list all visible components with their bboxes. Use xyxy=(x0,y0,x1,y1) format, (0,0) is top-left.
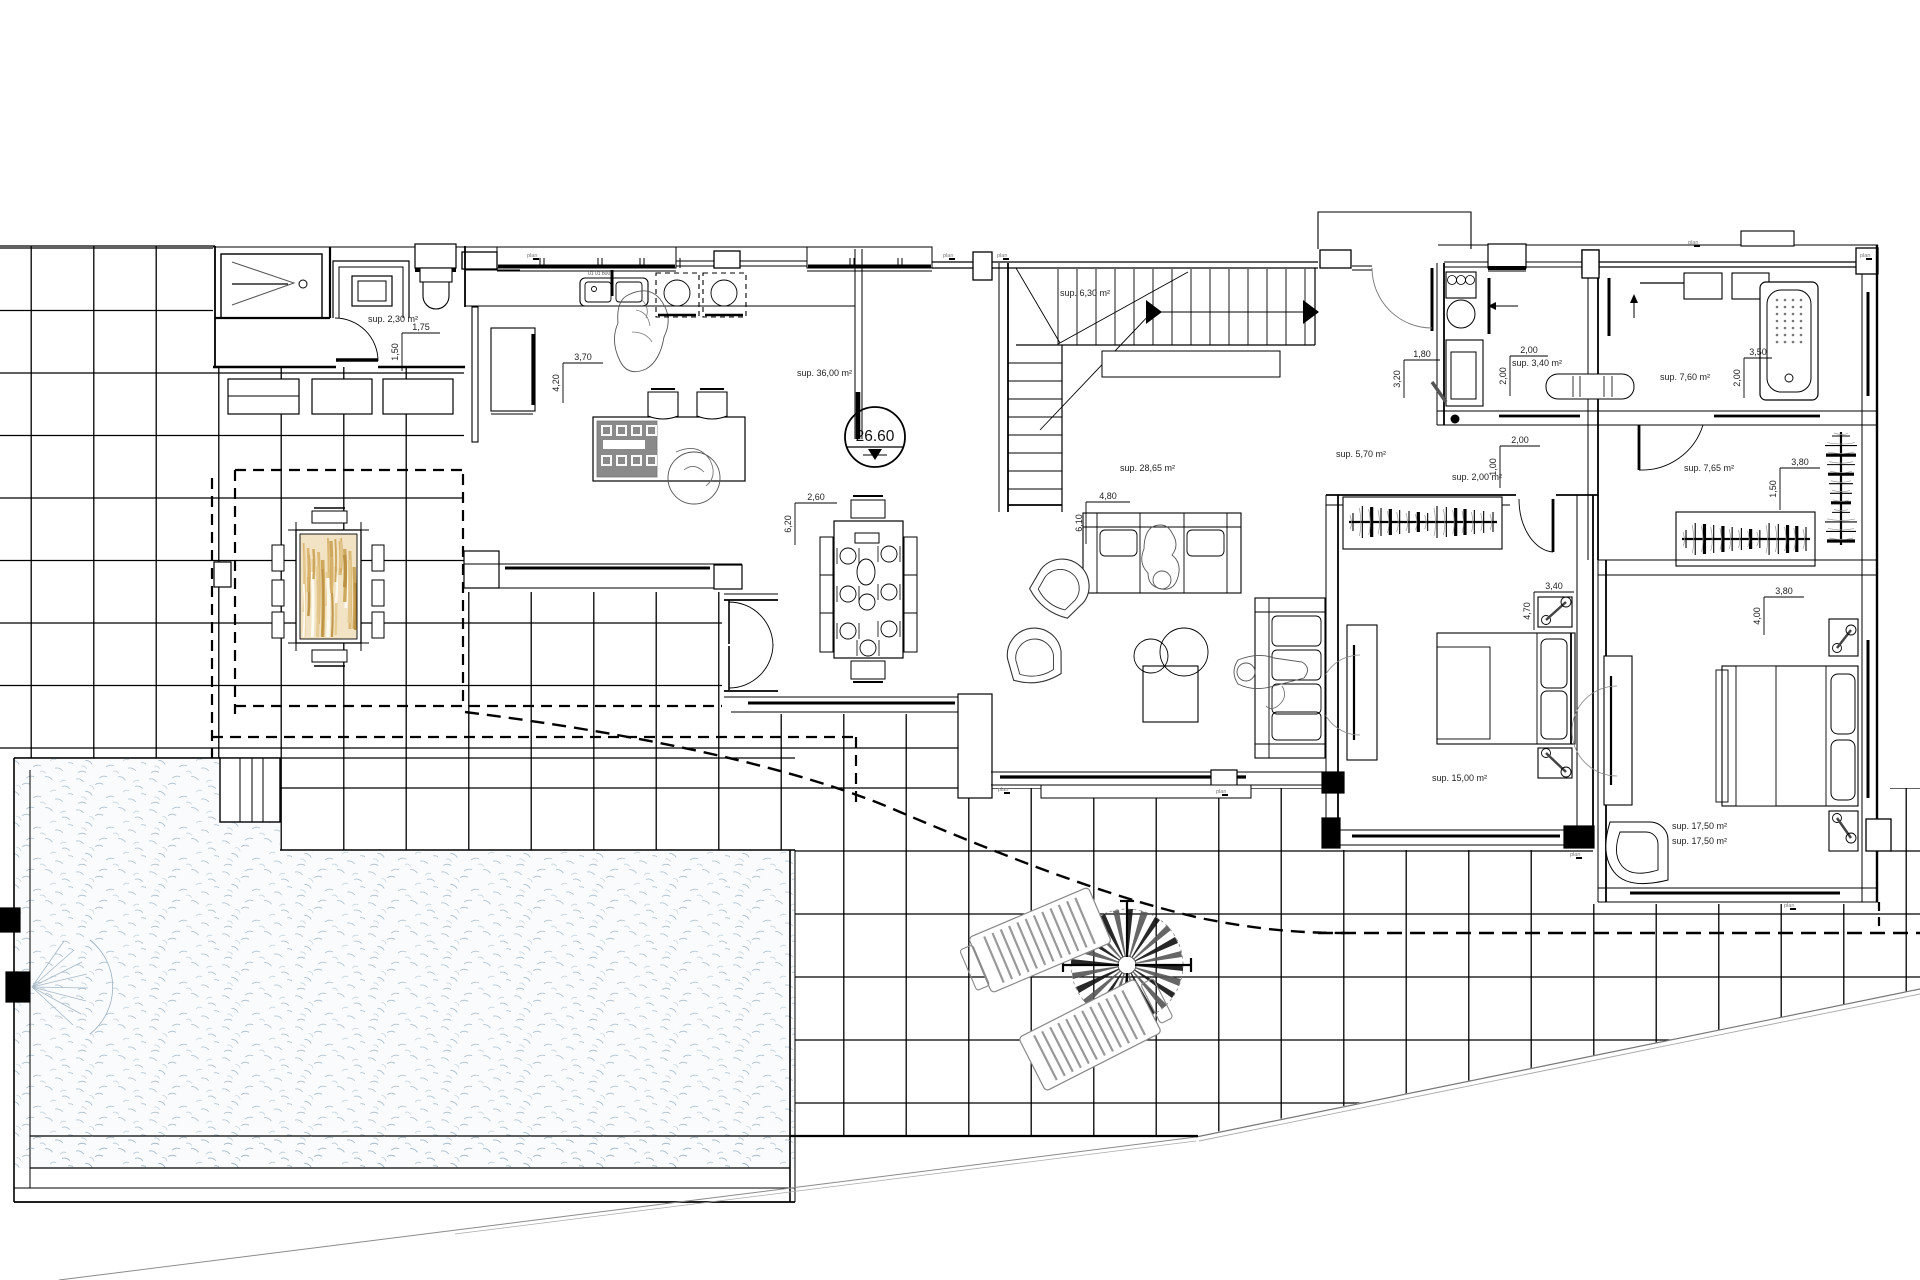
svg-text:1,00: 1,00 xyxy=(1488,458,1498,476)
svg-text:3,20: 3,20 xyxy=(1392,370,1402,388)
svg-text:sup. 15,00 m²: sup. 15,00 m² xyxy=(1432,773,1487,783)
svg-text:sup. 5,70 m²: sup. 5,70 m² xyxy=(1336,449,1386,459)
svg-text:2,60: 2,60 xyxy=(807,492,825,502)
svg-text:sup. 17,50 m²: sup. 17,50 m² xyxy=(1672,821,1727,831)
svg-text:4,80: 4,80 xyxy=(1099,491,1117,501)
svg-text:1,80: 1,80 xyxy=(1413,349,1431,359)
svg-text:2,00: 2,00 xyxy=(1732,369,1742,387)
svg-text:sup. 17,50 m²: sup. 17,50 m² xyxy=(1672,836,1727,846)
svg-text:1,50: 1,50 xyxy=(390,343,400,361)
svg-text:sup. 3,40 m²: sup. 3,40 m² xyxy=(1512,358,1562,368)
svg-text:3,50: 3,50 xyxy=(1749,347,1767,357)
svg-text:6,20: 6,20 xyxy=(783,515,793,533)
svg-text:4,70: 4,70 xyxy=(1522,602,1532,620)
svg-text:3,80: 3,80 xyxy=(1791,457,1809,467)
svg-text:1,50: 1,50 xyxy=(1768,480,1778,498)
svg-text:sup. 7,65 m²: sup. 7,65 m² xyxy=(1684,463,1734,473)
svg-text:sup. 36,00 m²: sup. 36,00 m² xyxy=(797,368,852,378)
svg-text:sup. 6,30 m²: sup. 6,30 m² xyxy=(1060,288,1110,298)
svg-text:4,20: 4,20 xyxy=(551,374,561,392)
svg-text:sup. 28,65 m²: sup. 28,65 m² xyxy=(1120,463,1175,473)
svg-text:01 01 b00: 01 01 b00 xyxy=(588,271,610,277)
svg-text:1,75: 1,75 xyxy=(412,322,430,332)
svg-text:4,00: 4,00 xyxy=(1752,607,1762,625)
svg-text:3,40: 3,40 xyxy=(1545,581,1563,591)
svg-text:sup. 2,30 m²: sup. 2,30 m² xyxy=(368,314,418,324)
svg-text:26.60: 26.60 xyxy=(856,428,895,445)
svg-text:3,80: 3,80 xyxy=(1775,586,1793,596)
svg-text:6,10: 6,10 xyxy=(1074,514,1084,532)
svg-text:sup. 7,60 m²: sup. 7,60 m² xyxy=(1660,372,1710,382)
svg-text:2,00: 2,00 xyxy=(1511,435,1529,445)
svg-text:2,00: 2,00 xyxy=(1498,367,1508,385)
svg-text:2,00: 2,00 xyxy=(1520,345,1538,355)
svg-text:3,70: 3,70 xyxy=(574,352,592,362)
